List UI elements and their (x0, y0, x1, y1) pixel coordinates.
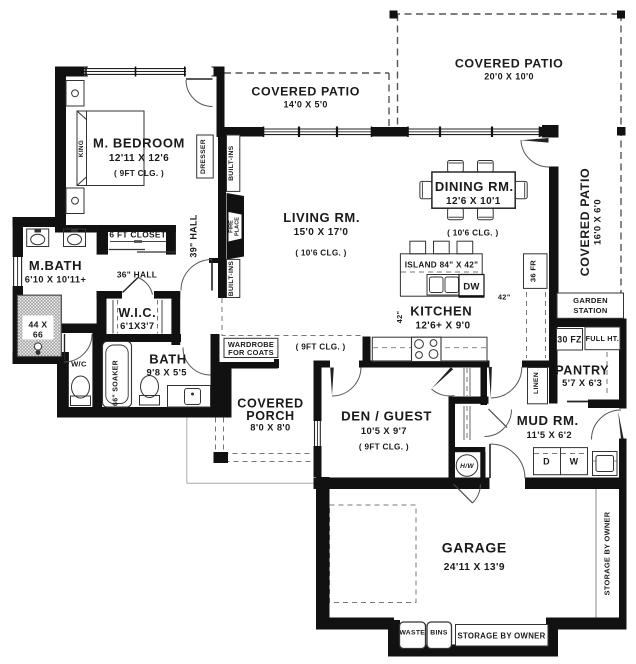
svg-text:42": 42" (395, 310, 404, 323)
svg-text:6'1X3'7: 6'1X3'7 (120, 320, 154, 331)
svg-text:KING: KING (78, 140, 85, 157)
svg-text:W.I.C.: W.I.C. (118, 306, 156, 320)
svg-text:42": 42" (498, 293, 511, 302)
svg-text:( 10'6 CLG. ): ( 10'6 CLG. ) (295, 249, 346, 258)
svg-text:COVERED PATIO: COVERED PATIO (455, 57, 564, 71)
svg-text:WASTE: WASTE (399, 630, 425, 637)
svg-text:PLACE: PLACE (235, 217, 241, 236)
svg-text:6'10 X 10'11+: 6'10 X 10'11+ (25, 275, 86, 285)
svg-text:11'5 X 6'2: 11'5 X 6'2 (527, 429, 572, 440)
svg-text:STATION: STATION (573, 306, 607, 315)
svg-text:( 9FT CLG. ): ( 9FT CLG. ) (296, 343, 346, 352)
svg-text:( 9FT CLG. ): ( 9FT CLG. ) (114, 169, 164, 178)
svg-text:PANTRY: PANTRY (555, 364, 609, 378)
svg-text:36" HALL: 36" HALL (117, 270, 157, 280)
svg-text:MUD RM.: MUD RM. (517, 413, 579, 428)
svg-text:M.BATH: M.BATH (29, 258, 82, 273)
svg-text:6 FT CLOSET: 6 FT CLOSET (109, 230, 166, 240)
svg-text:10'5 X 9'7: 10'5 X 9'7 (361, 425, 407, 436)
svg-text:LIVING RM.: LIVING RM. (283, 210, 360, 225)
svg-text:COVERED PATIO: COVERED PATIO (251, 85, 360, 99)
svg-text:12'11 X 12'6: 12'11 X 12'6 (109, 153, 169, 164)
svg-text:DINING RM.: DINING RM. (435, 179, 514, 194)
svg-text:STORAGE BY OWNER: STORAGE BY OWNER (457, 632, 545, 641)
svg-text:12'6 X 10'1: 12'6 X 10'1 (446, 196, 501, 207)
svg-text:D: D (543, 457, 550, 467)
svg-text:LINEN: LINEN (533, 372, 540, 394)
svg-text:12'6+ X 9'0: 12'6+ X 9'0 (415, 321, 470, 332)
svg-text:FULL HT.: FULL HT. (586, 334, 619, 343)
svg-text:14'0 X 5'0: 14'0 X 5'0 (284, 100, 328, 110)
svg-text:BATH: BATH (149, 352, 187, 367)
svg-text:W: W (570, 457, 579, 467)
svg-text:9'8 X 5'5: 9'8 X 5'5 (147, 367, 187, 378)
svg-text:M. BEDROOM: M. BEDROOM (93, 136, 185, 151)
svg-text:H/W: H/W (460, 463, 474, 470)
svg-text:FOR COATS: FOR COATS (228, 348, 274, 357)
svg-text:BUILT-INS: BUILT-INS (228, 261, 235, 297)
svg-text:KITCHEN: KITCHEN (410, 304, 472, 319)
svg-text:GARDEN: GARDEN (573, 296, 608, 305)
svg-text:( 10'6 CLG. ): ( 10'6 CLG. ) (447, 229, 498, 238)
svg-text:44 X: 44 X (29, 320, 48, 330)
svg-text:GARAGE: GARAGE (442, 540, 507, 556)
svg-text:66: 66 (33, 330, 43, 340)
svg-text:ISLAND 84" X 42": ISLAND 84" X 42" (405, 261, 479, 270)
svg-text:66" SOAKER: 66" SOAKER (113, 360, 120, 406)
svg-text:DW: DW (463, 282, 480, 293)
svg-text:( 9FT CLG. ): ( 9FT CLG. ) (359, 443, 409, 452)
svg-text:30 FZ: 30 FZ (557, 335, 582, 345)
svg-text:16'0 X 6'0: 16'0 X 6'0 (592, 199, 603, 245)
svg-text:DRESSER: DRESSER (200, 139, 207, 174)
svg-text:STORAGE BY OWNER: STORAGE BY OWNER (603, 511, 612, 595)
svg-text:BUILT-INS: BUILT-INS (228, 145, 235, 181)
svg-text:15'0 X 17'0: 15'0 X 17'0 (294, 227, 349, 238)
svg-text:8'0 X 8'0: 8'0 X 8'0 (250, 422, 290, 433)
svg-text:DEN / GUEST: DEN / GUEST (341, 409, 432, 424)
svg-text:COVERED PATIO: COVERED PATIO (578, 168, 592, 277)
svg-text:39" HALL: 39" HALL (188, 214, 198, 257)
svg-text:20'0 X 10'0: 20'0 X 10'0 (484, 72, 534, 82)
svg-text:36 FR: 36 FR (529, 260, 538, 282)
svg-text:5'7 X 6'3: 5'7 X 6'3 (562, 378, 602, 388)
svg-text:BINS: BINS (430, 630, 448, 637)
svg-text:24'11 X 13'9: 24'11 X 13'9 (444, 562, 505, 573)
svg-text:W/C: W/C (71, 360, 87, 369)
